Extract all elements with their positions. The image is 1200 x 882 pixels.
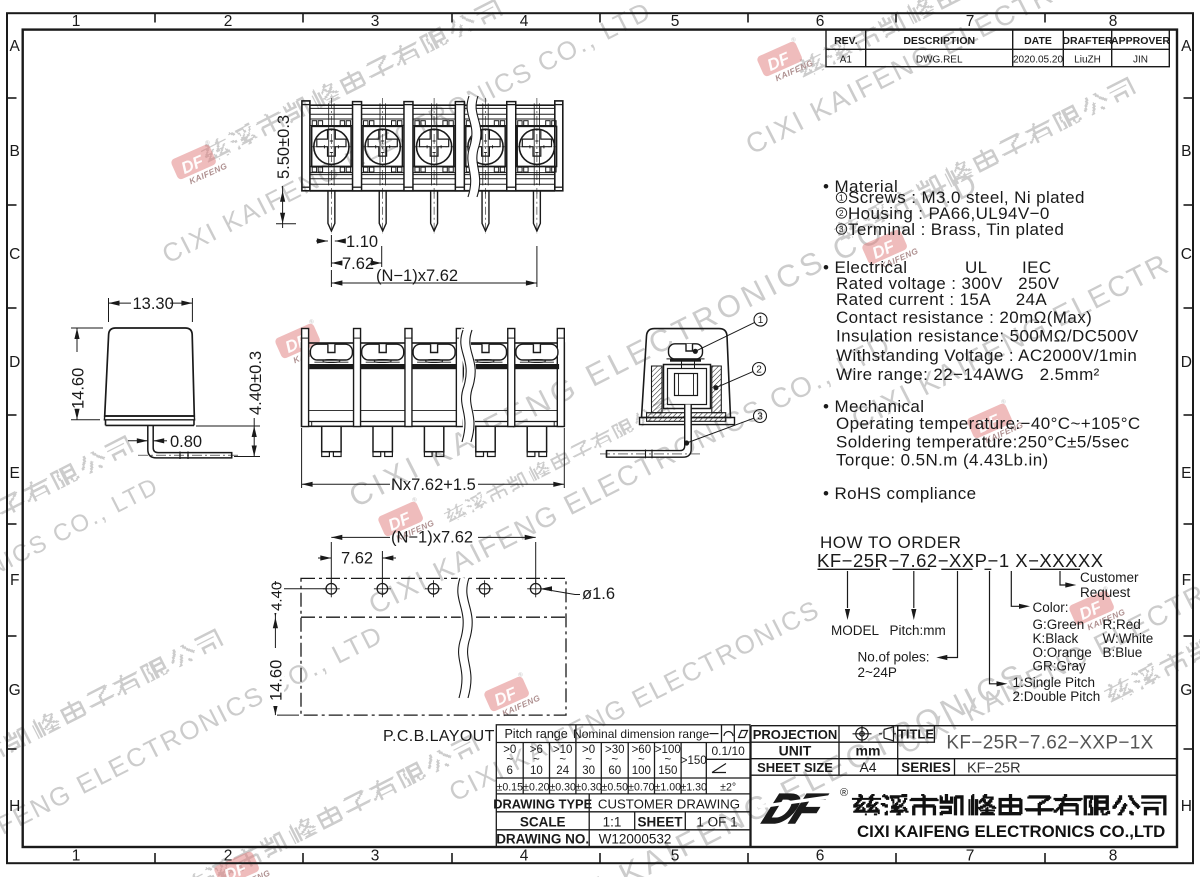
svg-text:DRAWING NO.: DRAWING NO. bbox=[496, 832, 589, 847]
svg-text:APPROVER: APPROVER bbox=[1111, 35, 1170, 47]
svg-text:®: ® bbox=[840, 787, 848, 799]
svg-text:CIXI KAIFENG ELECTRONICS CO.,L: CIXI KAIFENG ELECTRONICS CO.,LTD bbox=[857, 822, 1165, 841]
svg-text:P.C.B.LAYOUT: P.C.B.LAYOUT bbox=[383, 728, 495, 745]
svg-text:UNIT: UNIT bbox=[779, 743, 812, 759]
svg-text:4: 4 bbox=[520, 13, 529, 30]
svg-text:B: B bbox=[1181, 143, 1191, 160]
svg-text:2: 2 bbox=[756, 365, 762, 376]
svg-text:A: A bbox=[10, 38, 21, 55]
svg-text:±1.30: ±1.30 bbox=[680, 782, 707, 794]
svg-text:3: 3 bbox=[757, 412, 763, 423]
svg-text:E: E bbox=[1181, 465, 1191, 482]
svg-text:(N−1)x7.62: (N−1)x7.62 bbox=[391, 529, 473, 547]
svg-text:JIN: JIN bbox=[1133, 55, 1148, 66]
svg-text:>150: >150 bbox=[681, 755, 707, 767]
svg-text:D: D bbox=[1181, 354, 1192, 371]
svg-text:Wire range: 22−14AWG 2.5mm²: Wire range: 22−14AWG 2.5mm² bbox=[836, 365, 1100, 384]
svg-text:R:Red: R:Red bbox=[1103, 617, 1141, 632]
svg-text:W12000532: W12000532 bbox=[599, 832, 672, 847]
svg-text:±0.15: ±0.15 bbox=[497, 782, 524, 794]
svg-text:3: 3 bbox=[839, 224, 844, 234]
svg-text:1 OF 1: 1 OF 1 bbox=[696, 815, 737, 830]
svg-text:2~24P: 2~24P bbox=[858, 665, 897, 680]
svg-text:Rated current : 15A 24A: Rated current : 15A 24A bbox=[836, 290, 1047, 309]
svg-text:100: 100 bbox=[632, 765, 651, 777]
svg-text:SHEET: SHEET bbox=[637, 815, 683, 830]
svg-text:0.80: 0.80 bbox=[170, 433, 202, 451]
svg-text:D: D bbox=[9, 354, 20, 371]
svg-text:8: 8 bbox=[1109, 848, 1118, 865]
svg-text:14.60: 14.60 bbox=[70, 368, 88, 409]
svg-text:13.30: 13.30 bbox=[133, 295, 174, 313]
svg-text:F: F bbox=[10, 572, 19, 589]
svg-text:A4: A4 bbox=[859, 759, 876, 775]
svg-text:±0.30: ±0.30 bbox=[549, 782, 576, 794]
svg-text:G: G bbox=[9, 682, 21, 699]
svg-text:KF−25R: KF−25R bbox=[967, 761, 1021, 777]
svg-text:6: 6 bbox=[816, 13, 825, 30]
svg-text:1: 1 bbox=[758, 315, 764, 326]
svg-text:H: H bbox=[1181, 798, 1192, 815]
svg-text:SERIES: SERIES bbox=[901, 760, 951, 775]
svg-text:7: 7 bbox=[966, 13, 975, 30]
svg-text:B: B bbox=[10, 143, 20, 160]
svg-text:6: 6 bbox=[507, 765, 513, 777]
svg-text:2020.05.20: 2020.05.20 bbox=[1013, 55, 1063, 66]
svg-text:14.60: 14.60 bbox=[268, 660, 286, 701]
svg-text:PROJECTION: PROJECTION bbox=[753, 727, 838, 742]
svg-text:SHEET SIZE: SHEET SIZE bbox=[757, 760, 833, 775]
svg-text:Insulation resistance: 500MΩ/D: Insulation resistance: 500MΩ/DC500V bbox=[836, 327, 1139, 346]
svg-text:Pitch:mm: Pitch:mm bbox=[890, 623, 946, 638]
svg-text:C: C bbox=[9, 246, 20, 263]
svg-text:±0.20: ±0.20 bbox=[523, 782, 550, 794]
svg-text:DRAFTER: DRAFTER bbox=[1062, 35, 1113, 47]
svg-text:F: F bbox=[1182, 572, 1191, 589]
svg-text:No.of poles:: No.of poles: bbox=[858, 650, 930, 665]
svg-text:W:White: W:White bbox=[1103, 631, 1154, 646]
svg-text:7.62: 7.62 bbox=[342, 255, 374, 273]
svg-text:7.62: 7.62 bbox=[341, 550, 373, 568]
svg-text:• RoHS compliance: • RoHS compliance bbox=[823, 484, 977, 503]
svg-text:Torque: 0.5N.m (4.43Lb.in): Torque: 0.5N.m (4.43Lb.in) bbox=[836, 451, 1049, 470]
svg-text:7: 7 bbox=[966, 848, 975, 865]
svg-text:24: 24 bbox=[556, 765, 569, 777]
svg-text:C: C bbox=[1181, 246, 1192, 263]
svg-text:CUSTOMER DRAWING: CUSTOMER DRAWING bbox=[598, 797, 740, 812]
svg-text:2: 2 bbox=[839, 208, 844, 218]
svg-text:3: 3 bbox=[371, 848, 380, 865]
svg-text:2:Double Pitch: 2:Double Pitch bbox=[1013, 689, 1101, 704]
svg-text:4: 4 bbox=[520, 848, 529, 865]
svg-text:1: 1 bbox=[72, 13, 81, 30]
svg-text:B:Blue: B:Blue bbox=[1103, 645, 1143, 660]
svg-text:SCALE: SCALE bbox=[520, 815, 566, 830]
svg-text:3: 3 bbox=[371, 13, 380, 30]
svg-text:KF−25R−7.62−XXP−1X: KF−25R−7.62−XXP−1X bbox=[946, 733, 1153, 754]
svg-text:±1.00: ±1.00 bbox=[655, 782, 682, 794]
svg-text:G:Green: G:Green bbox=[1033, 617, 1085, 632]
svg-text:5.50±0.3: 5.50±0.3 bbox=[275, 115, 293, 179]
svg-text:6: 6 bbox=[816, 848, 825, 865]
svg-text:1: 1 bbox=[72, 848, 81, 865]
svg-text:Customer: Customer bbox=[1080, 570, 1139, 585]
svg-text:±0.70: ±0.70 bbox=[628, 782, 655, 794]
svg-text:K:Black: K:Black bbox=[1033, 631, 1079, 646]
svg-text:E: E bbox=[10, 465, 20, 482]
svg-text:REV.: REV. bbox=[834, 35, 858, 47]
svg-text:4.40: 4.40 bbox=[269, 582, 286, 611]
svg-text:Contact resistance : 20mΩ(Max): Contact resistance : 20mΩ(Max) bbox=[836, 308, 1092, 327]
svg-text:8: 8 bbox=[1109, 13, 1118, 30]
svg-text:G: G bbox=[1180, 682, 1192, 699]
svg-text:Color:: Color: bbox=[1033, 600, 1069, 615]
svg-text:Operating temperature:−40°C~+1: Operating temperature:−40°C~+105°C bbox=[836, 414, 1141, 433]
svg-text:0.1/10: 0.1/10 bbox=[711, 744, 745, 758]
svg-text:KF−25R−7.62−XXP−1 X−XXXXX: KF−25R−7.62−XXP−1 X−XXXXX bbox=[817, 550, 1104, 571]
svg-text:±0.30: ±0.30 bbox=[575, 782, 602, 794]
svg-text:TITLE: TITLE bbox=[898, 727, 934, 742]
svg-text:5: 5 bbox=[671, 848, 680, 865]
svg-text:Terminal : Brass, Tin plated: Terminal : Brass, Tin plated bbox=[848, 220, 1064, 239]
svg-text:Withstanding Voltage : AC2000V: Withstanding Voltage : AC2000V/1min bbox=[836, 346, 1137, 365]
svg-text:30: 30 bbox=[582, 765, 595, 777]
svg-text:2: 2 bbox=[224, 13, 233, 30]
svg-text:1.10: 1.10 bbox=[346, 233, 378, 251]
svg-text:1:Single Pitch: 1:Single Pitch bbox=[1013, 675, 1096, 690]
svg-text:ø1.6: ø1.6 bbox=[582, 585, 615, 603]
svg-text:MODEL: MODEL bbox=[831, 623, 880, 638]
svg-text:DRAWING TYPE: DRAWING TYPE bbox=[493, 797, 592, 812]
svg-text:(N−1)x7.62: (N−1)x7.62 bbox=[376, 267, 458, 285]
svg-text:A: A bbox=[1181, 38, 1192, 55]
svg-text:±0.50: ±0.50 bbox=[602, 782, 629, 794]
svg-text:DATE: DATE bbox=[1024, 35, 1052, 47]
svg-text:Soldering temperature:250°C±5/: Soldering temperature:250°C±5/5sec bbox=[836, 433, 1129, 452]
svg-text:4.40±0.3: 4.40±0.3 bbox=[247, 351, 265, 415]
svg-text:Request: Request bbox=[1080, 585, 1131, 600]
svg-text:Pitch range: Pitch range bbox=[504, 727, 567, 741]
svg-text:1: 1 bbox=[839, 193, 844, 203]
svg-text:LiuZH: LiuZH bbox=[1074, 55, 1101, 66]
svg-text:±2°: ±2° bbox=[720, 782, 736, 794]
svg-text:2: 2 bbox=[224, 848, 233, 865]
svg-text:H: H bbox=[9, 798, 20, 815]
svg-text:Nominal dimension range: Nominal dimension range bbox=[573, 727, 709, 741]
svg-text:GR:Gray: GR:Gray bbox=[1033, 659, 1087, 674]
svg-text:1:1: 1:1 bbox=[603, 815, 622, 830]
svg-text:mm: mm bbox=[856, 743, 881, 759]
svg-text:DWG.REL: DWG.REL bbox=[916, 55, 963, 66]
svg-text:60: 60 bbox=[608, 765, 621, 777]
svg-text:10: 10 bbox=[530, 765, 543, 777]
svg-text:Nx7.62+1.5: Nx7.62+1.5 bbox=[391, 476, 476, 494]
svg-text:A1: A1 bbox=[840, 55, 853, 66]
svg-text:150: 150 bbox=[658, 765, 677, 777]
svg-text:5: 5 bbox=[671, 13, 680, 30]
svg-text:DESCRIPTION: DESCRIPTION bbox=[903, 35, 975, 47]
